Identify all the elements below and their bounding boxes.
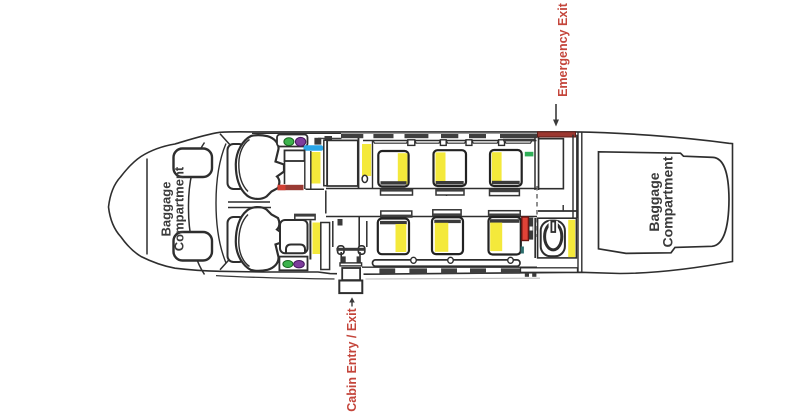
svg-text:Cabin Entry / Exit: Cabin Entry / Exit [345, 307, 359, 411]
svg-text:Emergency Exit: Emergency Exit [556, 2, 570, 97]
svg-text:Compartment: Compartment [172, 166, 187, 251]
svg-text:Compartment: Compartment [660, 156, 676, 247]
